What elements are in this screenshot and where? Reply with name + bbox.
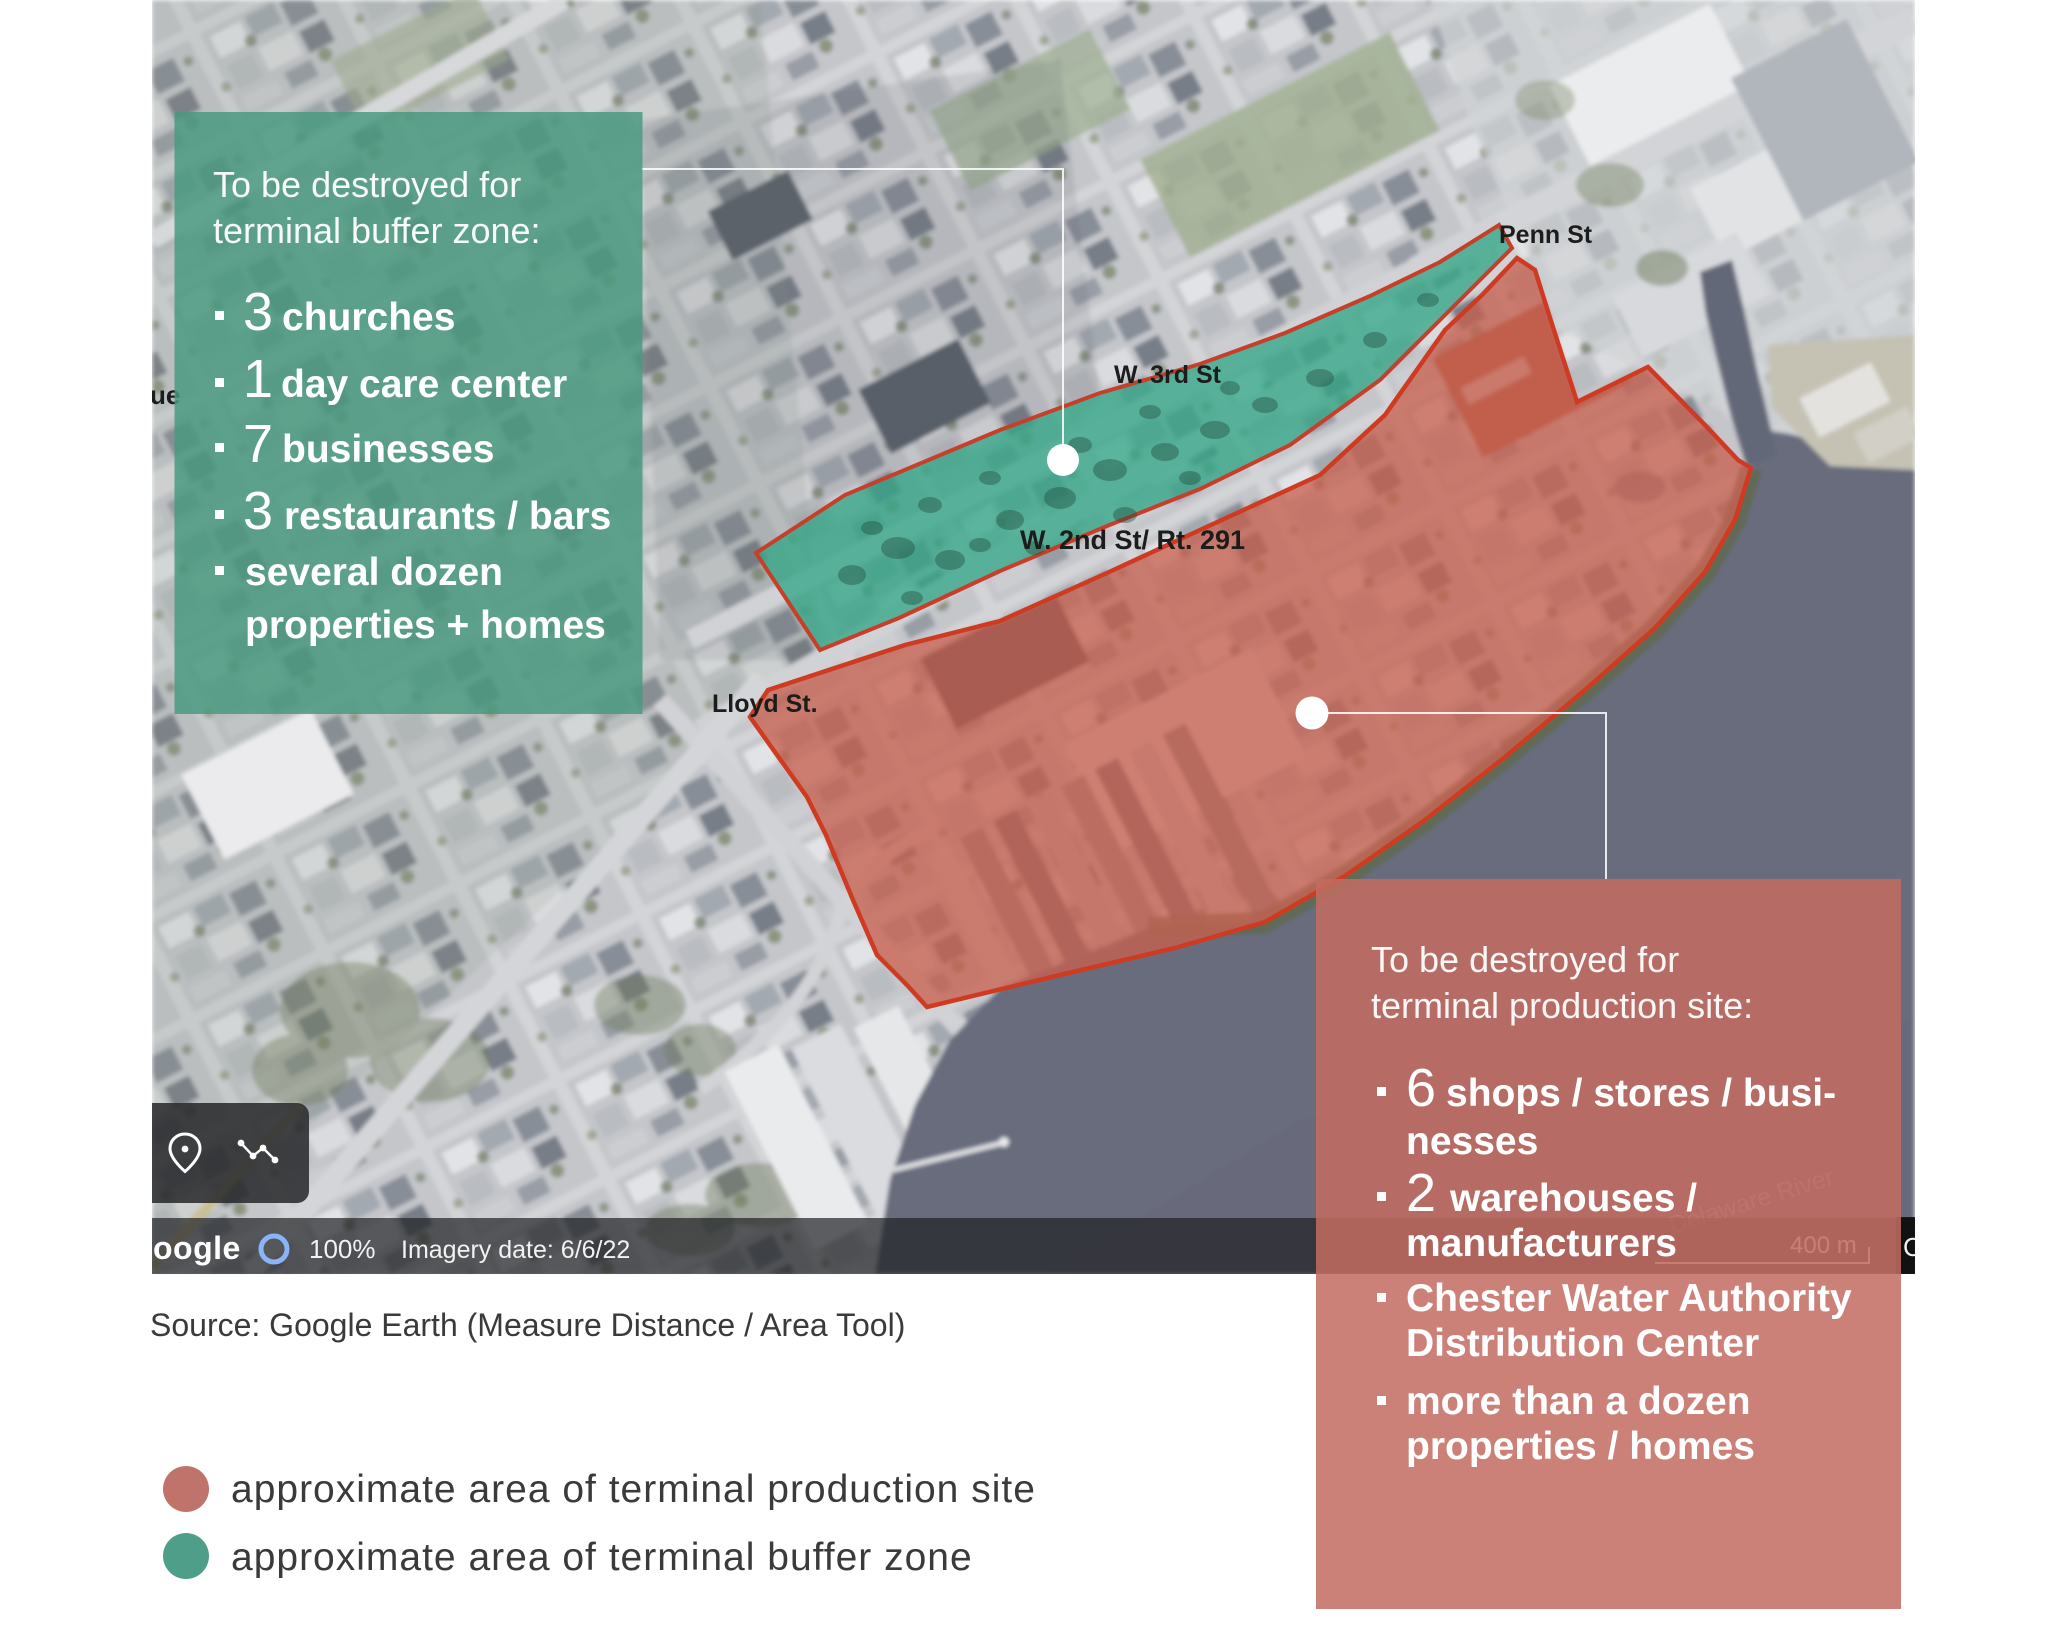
svg-text:To be destroyed for: To be destroyed for xyxy=(213,164,521,205)
svg-text:several dozen: several dozen xyxy=(245,551,503,594)
svg-text:oogle: oogle xyxy=(153,1230,241,1266)
svg-text:Imagery date: 6/6/22: Imagery date: 6/6/22 xyxy=(401,1236,630,1264)
svg-text:restaurants / bars: restaurants / bars xyxy=(284,495,611,538)
svg-text:Lloyd St.: Lloyd St. xyxy=(712,690,818,718)
svg-text:3: 3 xyxy=(243,481,273,541)
svg-text:terminal buffer zone:: terminal buffer zone: xyxy=(213,210,541,251)
svg-text:1: 1 xyxy=(243,349,273,409)
svg-text:100%: 100% xyxy=(309,1234,376,1264)
svg-text:approximate area of terminal b: approximate area of terminal buffer zone xyxy=(231,1536,973,1579)
svg-text:manufacturers: manufacturers xyxy=(1406,1222,1677,1265)
svg-text:W. 3rd St: W. 3rd St xyxy=(1114,361,1222,389)
svg-text:2: 2 xyxy=(1406,1163,1436,1223)
svg-text:approximate area of terminal p: approximate area of terminal production … xyxy=(231,1468,1036,1511)
svg-text:6: 6 xyxy=(1406,1058,1436,1118)
svg-text:properties + homes: properties + homes xyxy=(245,604,606,647)
svg-text:To be destroyed for: To be destroyed for xyxy=(1371,939,1679,980)
svg-text:businesses: businesses xyxy=(282,428,494,471)
svg-text:Chester Water Authority: Chester Water Authority xyxy=(1406,1277,1852,1320)
svg-text:3: 3 xyxy=(243,282,273,342)
svg-text:churches: churches xyxy=(282,296,455,339)
svg-text:Penn St: Penn St xyxy=(1499,221,1593,249)
svg-text:Distribution Center: Distribution Center xyxy=(1406,1322,1759,1365)
svg-text:warehouses /: warehouses / xyxy=(1449,1177,1697,1220)
svg-text:terminal production site:: terminal production site: xyxy=(1371,985,1753,1026)
svg-text:nesses: nesses xyxy=(1406,1120,1538,1163)
svg-text:shops / stores / busi-: shops / stores / busi- xyxy=(1446,1072,1836,1115)
svg-text:properties / homes: properties / homes xyxy=(1406,1425,1755,1468)
svg-text:W. 2nd St/ Rt. 291: W. 2nd St/ Rt. 291 xyxy=(1020,525,1245,555)
svg-text:more than a dozen: more than a dozen xyxy=(1406,1380,1751,1423)
svg-text:7: 7 xyxy=(243,414,273,474)
svg-text:Source: Google Earth (Measure: Source: Google Earth (Measure Distance /… xyxy=(150,1307,905,1343)
svg-text:day care center: day care center xyxy=(281,363,567,406)
